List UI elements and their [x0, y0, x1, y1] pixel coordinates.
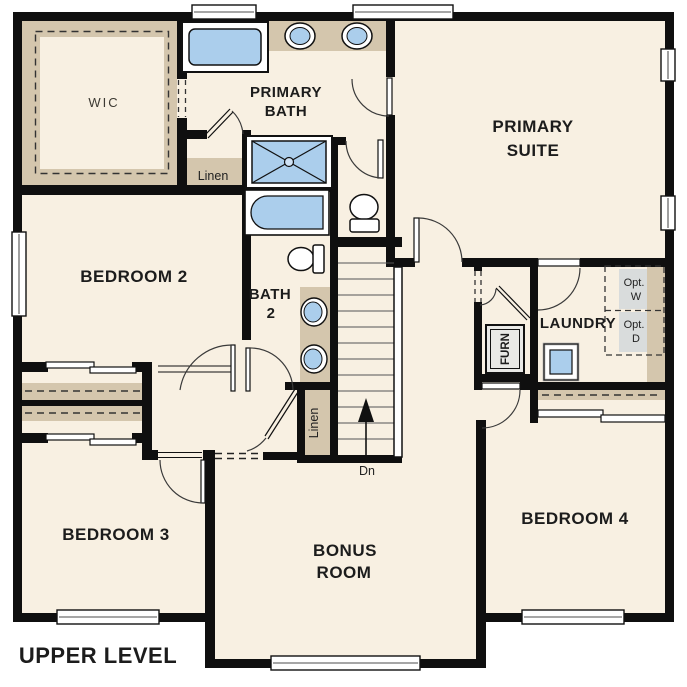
primary-tub-icon: [182, 22, 268, 72]
window-primary-suite-top: [353, 5, 453, 19]
linen-stairs-label: Linen: [307, 408, 321, 439]
bedroom2-label: BEDROOM 2: [80, 267, 187, 286]
furnace-label: FURN: [500, 333, 512, 365]
primary-toilet-icon: [350, 195, 379, 233]
bath2-toilet-icon: [288, 245, 324, 273]
bath2-label-1: BATH: [249, 286, 292, 303]
primary-suite-label-1: PRIMARY: [492, 117, 573, 136]
stair-rail: [394, 267, 402, 457]
window-bedroom4: [522, 610, 624, 624]
opt-dryer-label-1: Opt.: [624, 319, 645, 331]
opt-washer-label-2: W: [631, 291, 642, 303]
bath2-label-2: 2: [267, 305, 276, 322]
bedroom3-label: BEDROOM 3: [62, 525, 169, 544]
linen-upper-label: Linen: [198, 169, 229, 183]
laundry-label: LAUNDRY: [540, 315, 616, 332]
laundry-shelf-strip: [647, 267, 665, 390]
floor-plan: WIC PRIMARY BATH PRIMARY SUITE BEDROOM 2…: [0, 0, 687, 687]
bonus-room-label-1: BONUS: [313, 541, 377, 560]
window-suite-right-1: [661, 49, 675, 81]
primary-bath-label-2: BATH: [265, 103, 308, 120]
bedroom4-label: BEDROOM 4: [521, 509, 629, 528]
opt-washer-label-1: Opt.: [624, 277, 645, 289]
window-bedroom2: [12, 232, 26, 316]
window-bonus-room: [271, 656, 420, 670]
wic-label: WIC: [88, 95, 119, 110]
stairs-down-label: Dn: [359, 464, 375, 478]
window-suite-right-2: [661, 196, 675, 230]
window-bedroom3: [57, 610, 159, 624]
opt-dryer-label-2: D: [632, 333, 640, 345]
shower-icon: [246, 136, 332, 188]
page-title: UPPER LEVEL: [19, 643, 177, 668]
primary-bath-label-1: PRIMARY: [250, 84, 322, 101]
bath2-tub-icon: [245, 190, 329, 235]
floor-plan-page: WIC PRIMARY BATH PRIMARY SUITE BEDROOM 2…: [0, 0, 687, 687]
primary-suite-label-2: SUITE: [507, 141, 560, 160]
window-primary-bath: [192, 5, 256, 19]
bonus-room-label-2: ROOM: [317, 563, 372, 582]
laundry-sink-icon: [544, 344, 578, 380]
